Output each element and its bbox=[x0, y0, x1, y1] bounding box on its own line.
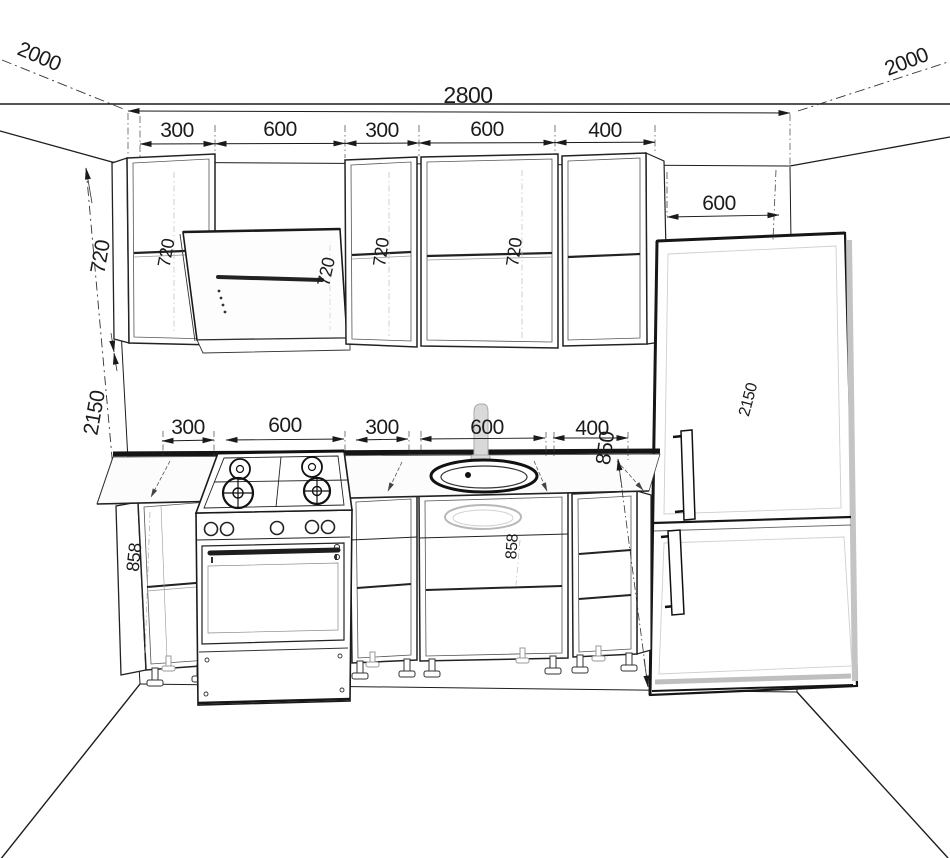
wall-cabinet-4: 720 bbox=[421, 154, 558, 348]
leg bbox=[572, 655, 588, 673]
dim-upper-3: 300 bbox=[365, 119, 399, 142]
oven-handle bbox=[210, 550, 338, 553]
leg bbox=[424, 659, 440, 677]
dim-base-2: 600 bbox=[268, 414, 302, 437]
leg bbox=[399, 659, 415, 677]
dim-upper-1: 300 bbox=[160, 119, 194, 142]
ghost-height-cab3: 720 bbox=[369, 236, 393, 268]
dim-base-4: 600 bbox=[470, 416, 504, 439]
dimension-fridge-clearance: 600 bbox=[667, 170, 779, 240]
floor-left-diagonal bbox=[0, 684, 140, 858]
ceiling-left-diagonal bbox=[0, 131, 112, 162]
wall-cabinet-5 bbox=[562, 153, 668, 346]
dim-total-height: 2150 bbox=[79, 389, 109, 437]
kitchen-drawing-canvas: 2000 2000 2800 300 600 300 600 400 bbox=[0, 0, 950, 858]
kitchen-elevation-drawing: 2000 2000 2800 300 600 300 600 400 bbox=[0, 0, 950, 858]
wall-cabinets: 720 720 720 bbox=[112, 153, 668, 353]
left-wall-depth-line bbox=[2, 60, 126, 110]
dim-upper-5: 400 bbox=[588, 119, 622, 142]
sink-cabinet: 858 bbox=[419, 492, 568, 661]
wall-cabinet-3: 720 bbox=[345, 157, 417, 347]
base-cabinet-middle bbox=[350, 494, 417, 663]
dim-base-3: 300 bbox=[365, 416, 399, 439]
leg bbox=[621, 653, 637, 671]
dim-overall-width: 2800 bbox=[443, 82, 492, 108]
dim-fridge-clearance: 600 bbox=[702, 192, 736, 215]
leg bbox=[147, 668, 163, 686]
ceiling-right-diagonal bbox=[790, 137, 950, 166]
dim-base-1: 300 bbox=[171, 416, 205, 439]
base-cabinet-right bbox=[572, 491, 651, 657]
dim-upper-cabinet-height: 720 bbox=[86, 238, 114, 275]
sink-rim-outer bbox=[431, 460, 537, 492]
stove bbox=[196, 451, 352, 705]
floor-right-diagonal bbox=[797, 692, 948, 858]
fridge: 2150 bbox=[650, 233, 857, 695]
label-base-cabinet-height: 858 bbox=[123, 542, 146, 573]
dimension-upper-row: 300 600 300 600 400 bbox=[140, 116, 655, 158]
dimension-overall-width: 2800 bbox=[128, 82, 790, 165]
dim-right-wall-depth: 2000 bbox=[882, 43, 932, 80]
dim-worktop-height: 850 bbox=[592, 430, 619, 466]
ghost-height-sink-cab: 858 bbox=[503, 533, 522, 560]
hood-cabinet: 720 bbox=[180, 229, 350, 353]
sink-drain bbox=[465, 472, 471, 478]
dim-upper-4: 600 bbox=[470, 118, 504, 141]
cooktop bbox=[196, 451, 352, 513]
dim-upper-2: 600 bbox=[263, 118, 297, 141]
ghost-height-cab4: 720 bbox=[502, 236, 526, 268]
backsplash-edge bbox=[113, 451, 660, 454]
dim-left-wall-depth: 2000 bbox=[14, 37, 64, 76]
